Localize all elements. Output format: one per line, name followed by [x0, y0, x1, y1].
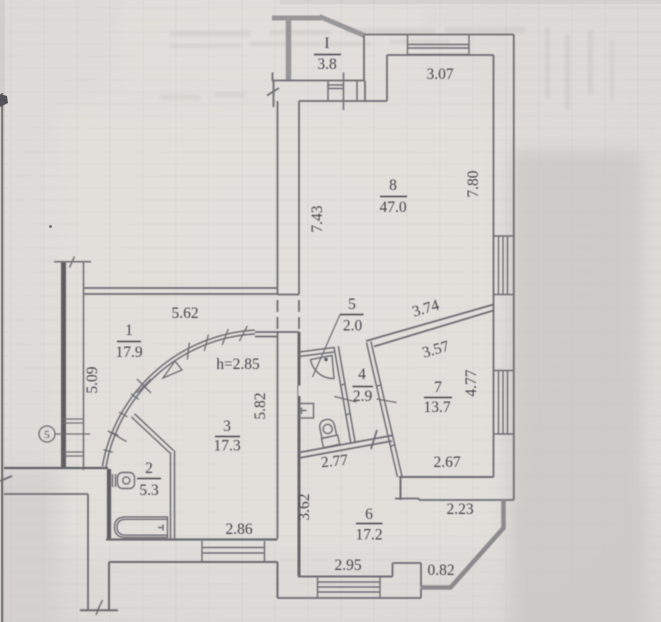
svg-text:5.62: 5.62	[171, 305, 198, 322]
svg-text:0.82: 0.82	[427, 562, 454, 579]
svg-text:4: 4	[358, 366, 366, 383]
svg-text:3: 3	[223, 418, 231, 435]
svg-text:17.9: 17.9	[115, 344, 142, 361]
svg-text:6: 6	[365, 506, 373, 523]
svg-text:2.0: 2.0	[343, 318, 363, 335]
svg-text:5: 5	[348, 296, 356, 313]
svg-text:5: 5	[44, 429, 50, 441]
svg-text:2.9: 2.9	[353, 388, 373, 405]
svg-text:2.23: 2.23	[446, 501, 473, 518]
svg-text:h=2.85: h=2.85	[216, 356, 260, 373]
svg-text:17.2: 17.2	[355, 527, 382, 544]
svg-text:5.3: 5.3	[139, 482, 159, 499]
svg-text:47.0: 47.0	[379, 199, 406, 216]
svg-text:5.82: 5.82	[252, 392, 269, 419]
svg-text:2.86: 2.86	[225, 521, 252, 538]
svg-text:3.8: 3.8	[317, 56, 337, 73]
svg-text:2.67: 2.67	[433, 454, 460, 471]
svg-text:2: 2	[145, 460, 153, 477]
svg-text:4.77: 4.77	[463, 369, 480, 396]
svg-text:7.43: 7.43	[309, 205, 326, 232]
svg-text:7.80: 7.80	[465, 170, 482, 197]
svg-text:2.77: 2.77	[320, 452, 349, 472]
svg-text:1: 1	[125, 322, 133, 339]
svg-text:8: 8	[389, 177, 397, 194]
svg-text:3.62: 3.62	[296, 493, 313, 520]
svg-text:2.95: 2.95	[334, 557, 361, 574]
svg-text:I: I	[324, 35, 329, 52]
svg-text:5.09: 5.09	[84, 366, 101, 393]
svg-text:7: 7	[434, 379, 442, 396]
svg-text:13.7: 13.7	[423, 399, 450, 416]
svg-text:17.3: 17.3	[213, 438, 240, 455]
svg-text:3.07: 3.07	[426, 66, 453, 83]
